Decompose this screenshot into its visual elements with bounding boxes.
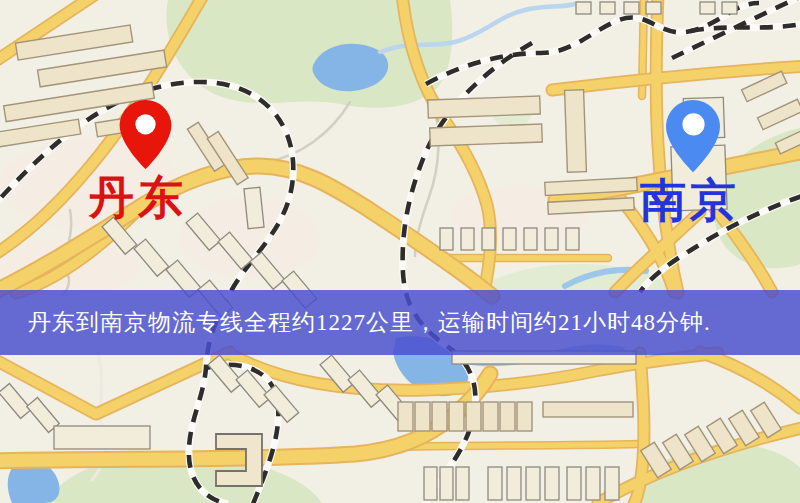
route-info-text: 丹东到南京物流专线全程约1227公里，运输时间约21小时48分钟. — [28, 307, 711, 338]
destination-city-label: 南京 — [640, 178, 740, 224]
map-canvas — [0, 0, 800, 503]
route-info-banner: 丹东到南京物流专线全程约1227公里，运输时间约21小时48分钟. — [0, 290, 800, 355]
logistics-route-map: 丹东 南京 丹东到南京物流专线全程约1227公里，运输时间约21小时48分钟. — [0, 0, 800, 503]
destination-pin-icon — [664, 99, 722, 173]
origin-city-label: 丹东 — [89, 176, 187, 221]
origin-pin-icon — [119, 99, 172, 170]
